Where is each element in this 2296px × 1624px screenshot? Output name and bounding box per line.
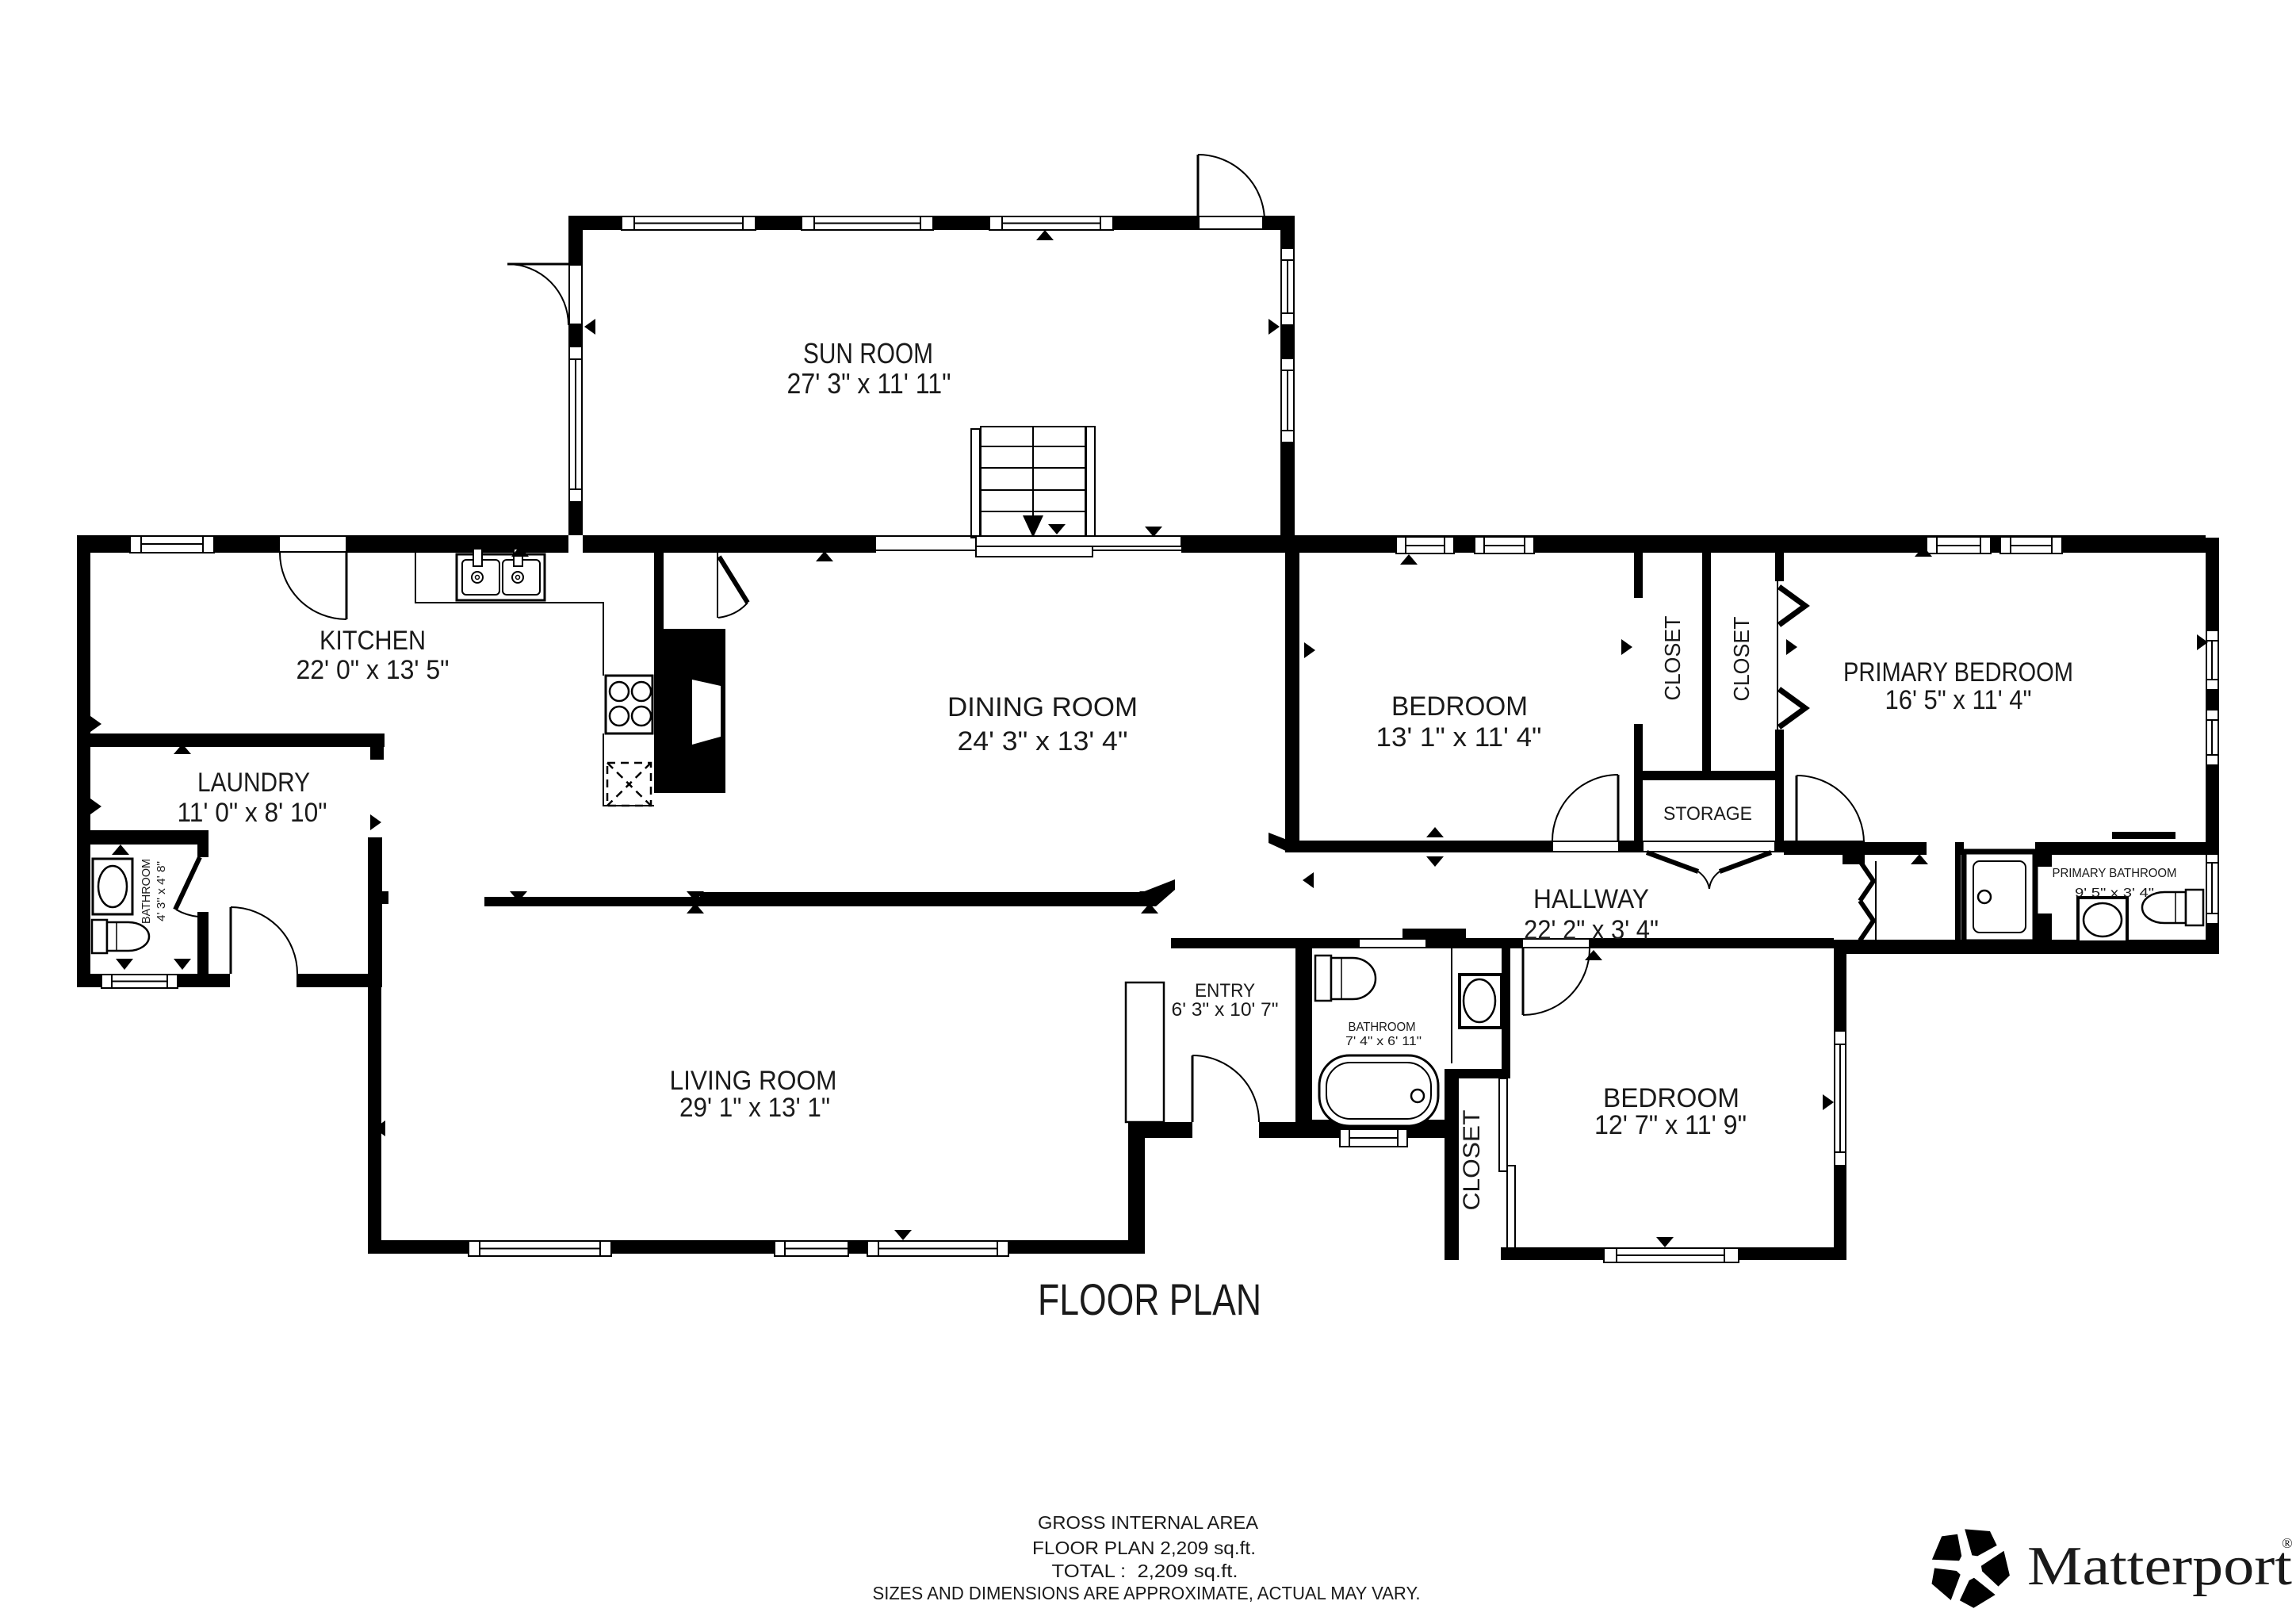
svg-text:13' 1" x 11' 4": 13' 1" x 11' 4" xyxy=(1376,722,1542,753)
svg-text:12' 7" x 11' 9": 12' 7" x 11' 9" xyxy=(1594,1110,1747,1140)
svg-text:9' 5" x 3' 4": 9' 5" x 3' 4" xyxy=(2075,887,2154,900)
svg-text:CLOSET: CLOSET xyxy=(1660,616,1685,701)
svg-text:FLOOR PLAN: FLOOR PLAN xyxy=(1038,1274,1261,1324)
svg-text:4' 3" x 4' 8": 4' 3" x 4' 8" xyxy=(155,861,168,921)
svg-text:TOTAL : 2,209 sq.ft.: TOTAL : 2,209 sq.ft. xyxy=(1052,1561,1238,1581)
svg-text:22' 0" x 13' 5": 22' 0" x 13' 5" xyxy=(297,655,450,685)
svg-text:CLOSET: CLOSET xyxy=(1459,1110,1485,1211)
svg-text:®: ® xyxy=(2282,1535,2293,1551)
svg-text:6' 3" x 10' 7": 6' 3" x 10' 7" xyxy=(1172,999,1279,1021)
svg-text:BATHROOM: BATHROOM xyxy=(1349,1021,1416,1034)
svg-text:BEDROOM: BEDROOM xyxy=(1603,1083,1739,1113)
svg-text:HALLWAY: HALLWAY xyxy=(1533,884,1649,914)
svg-text:STORAGE: STORAGE xyxy=(1663,803,1752,825)
svg-text:CLOSET: CLOSET xyxy=(1729,617,1754,702)
svg-text:KITCHEN: KITCHEN xyxy=(320,626,426,656)
svg-text:24' 3" x 13' 4": 24' 3" x 13' 4" xyxy=(958,726,1128,756)
svg-text:SIZES AND DIMENSIONS ARE APPRO: SIZES AND DIMENSIONS ARE APPROXIMATE, AC… xyxy=(873,1583,1421,1603)
svg-text:GROSS INTERNAL AREA: GROSS INTERNAL AREA xyxy=(1038,1512,1259,1533)
svg-text:BEDROOM: BEDROOM xyxy=(1391,691,1528,722)
svg-text:16' 5" x 11' 4": 16' 5" x 11' 4" xyxy=(1885,685,2032,715)
svg-text:Matterport: Matterport xyxy=(2027,1536,2293,1597)
svg-text:DINING ROOM: DINING ROOM xyxy=(947,692,1138,722)
svg-text:29' 1" x 13' 1": 29' 1" x 13' 1" xyxy=(679,1093,830,1123)
svg-text:ENTRY: ENTRY xyxy=(1195,980,1255,1002)
svg-text:27' 3" x 11' 11": 27' 3" x 11' 11" xyxy=(787,367,951,400)
svg-text:PRIMARY BEDROOM: PRIMARY BEDROOM xyxy=(1843,657,2073,688)
svg-text:PRIMARY BATHROOM: PRIMARY BATHROOM xyxy=(2053,867,2177,880)
svg-text:BATHROOM: BATHROOM xyxy=(140,859,153,924)
svg-text:FLOOR PLAN 2,209 sq.ft.: FLOOR PLAN 2,209 sq.ft. xyxy=(1032,1538,1256,1558)
svg-text:LIVING ROOM: LIVING ROOM xyxy=(670,1066,837,1096)
svg-text:SUN ROOM: SUN ROOM xyxy=(803,337,933,370)
svg-text:22' 2" x 3' 4": 22' 2" x 3' 4" xyxy=(1524,915,1659,945)
svg-text:LAUNDRY: LAUNDRY xyxy=(197,768,310,798)
svg-text:7' 4" x 6' 11": 7' 4" x 6' 11" xyxy=(1345,1035,1422,1048)
svg-text:11' 0" x 8' 10": 11' 0" x 8' 10" xyxy=(178,798,327,828)
